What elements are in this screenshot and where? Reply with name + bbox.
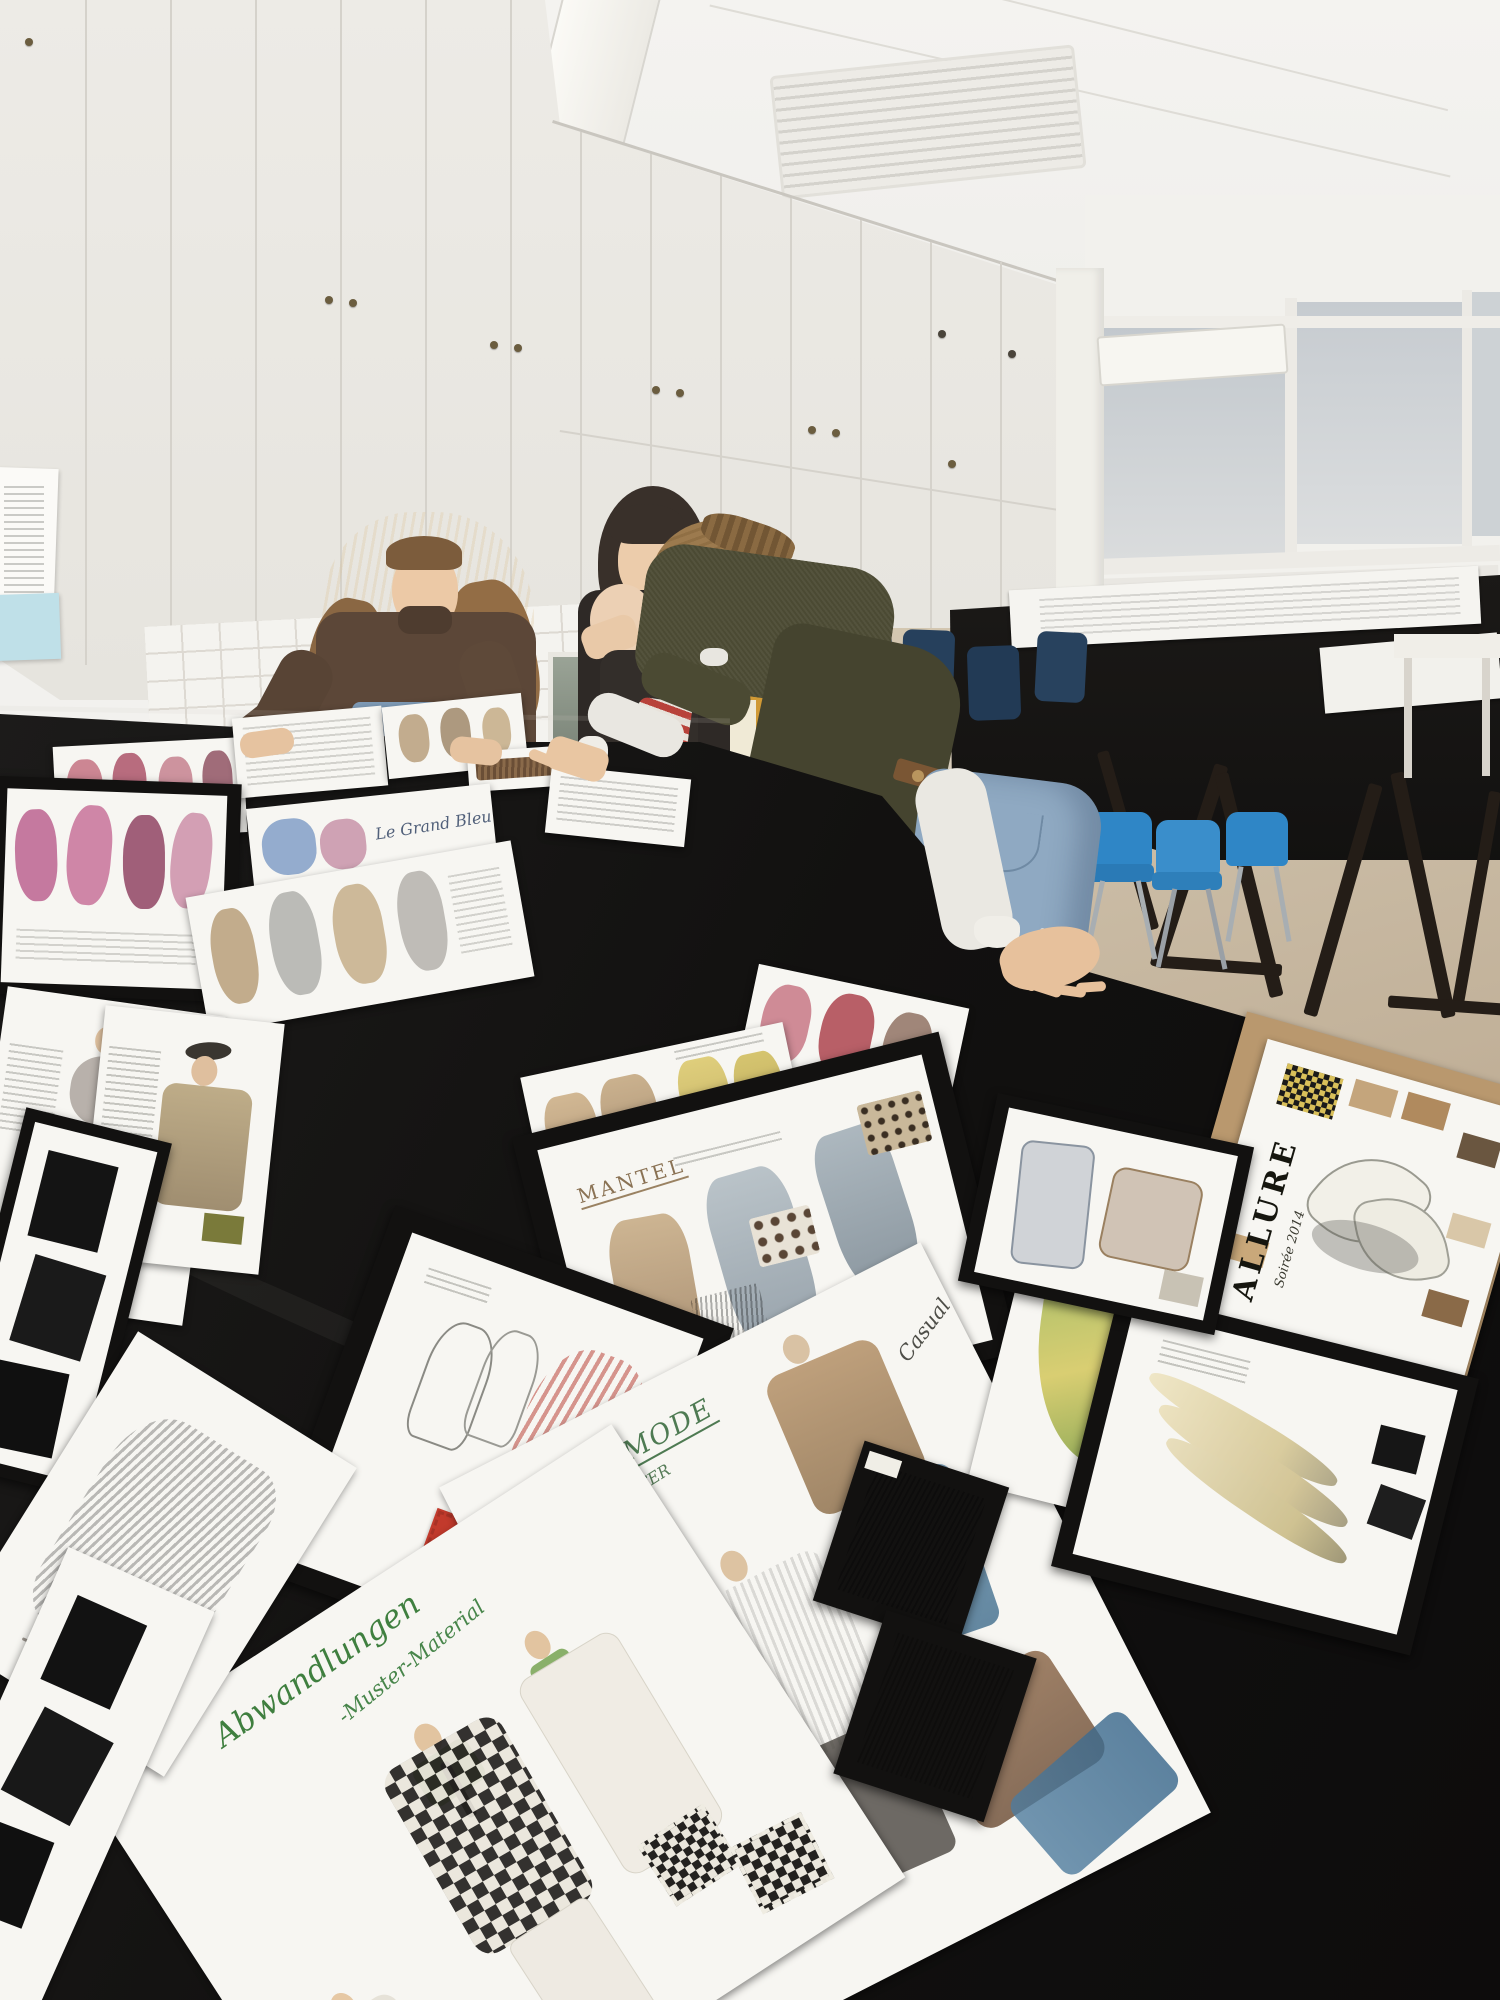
window-glass	[1472, 292, 1500, 536]
mantel-title: MANTEL	[574, 1153, 688, 1211]
cabinet-seam	[170, 0, 172, 678]
cabinet-knob-icon	[325, 296, 333, 304]
sketch-lines	[556, 776, 678, 834]
cabinet-knob-icon	[349, 299, 357, 307]
costume-figure	[123, 815, 165, 909]
window-mullion	[1462, 290, 1472, 546]
fur-swatch	[856, 1632, 1014, 1799]
figure-head	[325, 1988, 361, 2000]
caption-lines	[448, 867, 513, 955]
pattern-swatch	[729, 1812, 834, 1914]
cabinet-knob-icon	[948, 460, 956, 468]
board-pointed-sketch	[545, 765, 691, 847]
cabinet-seam	[930, 242, 932, 646]
caption-lines	[15, 929, 196, 969]
tan-swatch	[1456, 1132, 1500, 1168]
cabinet-knob-icon	[938, 330, 946, 338]
navy-chair	[1034, 631, 1088, 704]
woman-left-collar	[398, 606, 452, 634]
cabinet-knob-icon	[514, 344, 522, 352]
window-top-frame	[1096, 316, 1500, 328]
cabinet-knob-icon	[490, 341, 498, 349]
garments-sheet	[974, 1108, 1238, 1321]
black-swatch	[1367, 1484, 1426, 1540]
jeans-sketch	[1009, 1139, 1096, 1270]
sketch-figure	[204, 905, 264, 1007]
cabinet-knob-icon	[652, 386, 660, 394]
tan-swatch	[1421, 1289, 1469, 1327]
swatch-label	[864, 1451, 902, 1479]
cabinet-knob-icon	[1008, 350, 1016, 358]
mantel-annotations	[673, 1131, 783, 1169]
cabinet-seam	[1000, 262, 1002, 640]
tan-swatch	[1401, 1092, 1451, 1131]
side-table-leg	[1404, 658, 1412, 778]
black-swatch	[27, 1150, 118, 1253]
black-swatch	[9, 1254, 106, 1362]
olive-swatch	[202, 1213, 245, 1245]
tan-swatch	[1446, 1213, 1492, 1249]
top-sketch	[1096, 1165, 1205, 1274]
window-glass	[1297, 302, 1462, 544]
woman-right-collar-white	[700, 648, 728, 666]
tan-swatch	[1348, 1079, 1398, 1118]
woman-left-fringe	[386, 536, 462, 570]
finger	[1076, 981, 1107, 993]
fur-swatch	[835, 1463, 986, 1624]
grand-bleu-title: Le Grand Bleu	[374, 806, 493, 843]
sketch-figure	[397, 713, 432, 764]
small-swatch	[1159, 1269, 1204, 1307]
cabinet-seam	[580, 132, 582, 667]
gold-black-pattern-swatch	[1276, 1063, 1343, 1119]
black-swatch	[0, 1816, 54, 1929]
sketch-figure	[391, 868, 454, 974]
cabinet-knob-icon	[832, 429, 840, 437]
black-swatch	[1, 1707, 114, 1827]
wall-paper-sketch-lines	[4, 486, 44, 596]
black-swatch	[40, 1595, 147, 1710]
cabinet-seam	[85, 0, 87, 665]
light-coat	[295, 1989, 477, 2000]
navy-chair	[967, 645, 1022, 721]
costume-figure	[14, 809, 59, 902]
blue-flower-sketch	[318, 817, 369, 872]
blue-chair	[1156, 820, 1220, 876]
cabinet-knob-icon	[808, 426, 816, 434]
side-table-white	[1394, 634, 1500, 658]
blue-chair	[1226, 812, 1288, 866]
sketch-figure	[262, 888, 327, 999]
cabinet-knob-icon	[25, 38, 33, 46]
magenta-sheet	[1, 788, 228, 990]
wall-paper-cyan	[0, 593, 61, 661]
sketch-figure	[326, 880, 393, 987]
side-table-leg	[1482, 658, 1490, 776]
window-mullion	[1285, 298, 1297, 560]
black-swatch	[1371, 1425, 1425, 1475]
cabinet-knob-icon	[676, 389, 684, 397]
blue-flower-sketch	[259, 816, 319, 877]
costume-figure	[63, 803, 116, 906]
blue-chair-seat	[1152, 872, 1222, 890]
cabinet-seam	[255, 0, 257, 688]
studio-photo: Le Grand Bleu MANTEL	[0, 0, 1500, 2000]
leopard-swatch	[856, 1090, 933, 1156]
black-swatch	[0, 1359, 70, 1458]
typed-caption-lines	[423, 1268, 492, 1307]
